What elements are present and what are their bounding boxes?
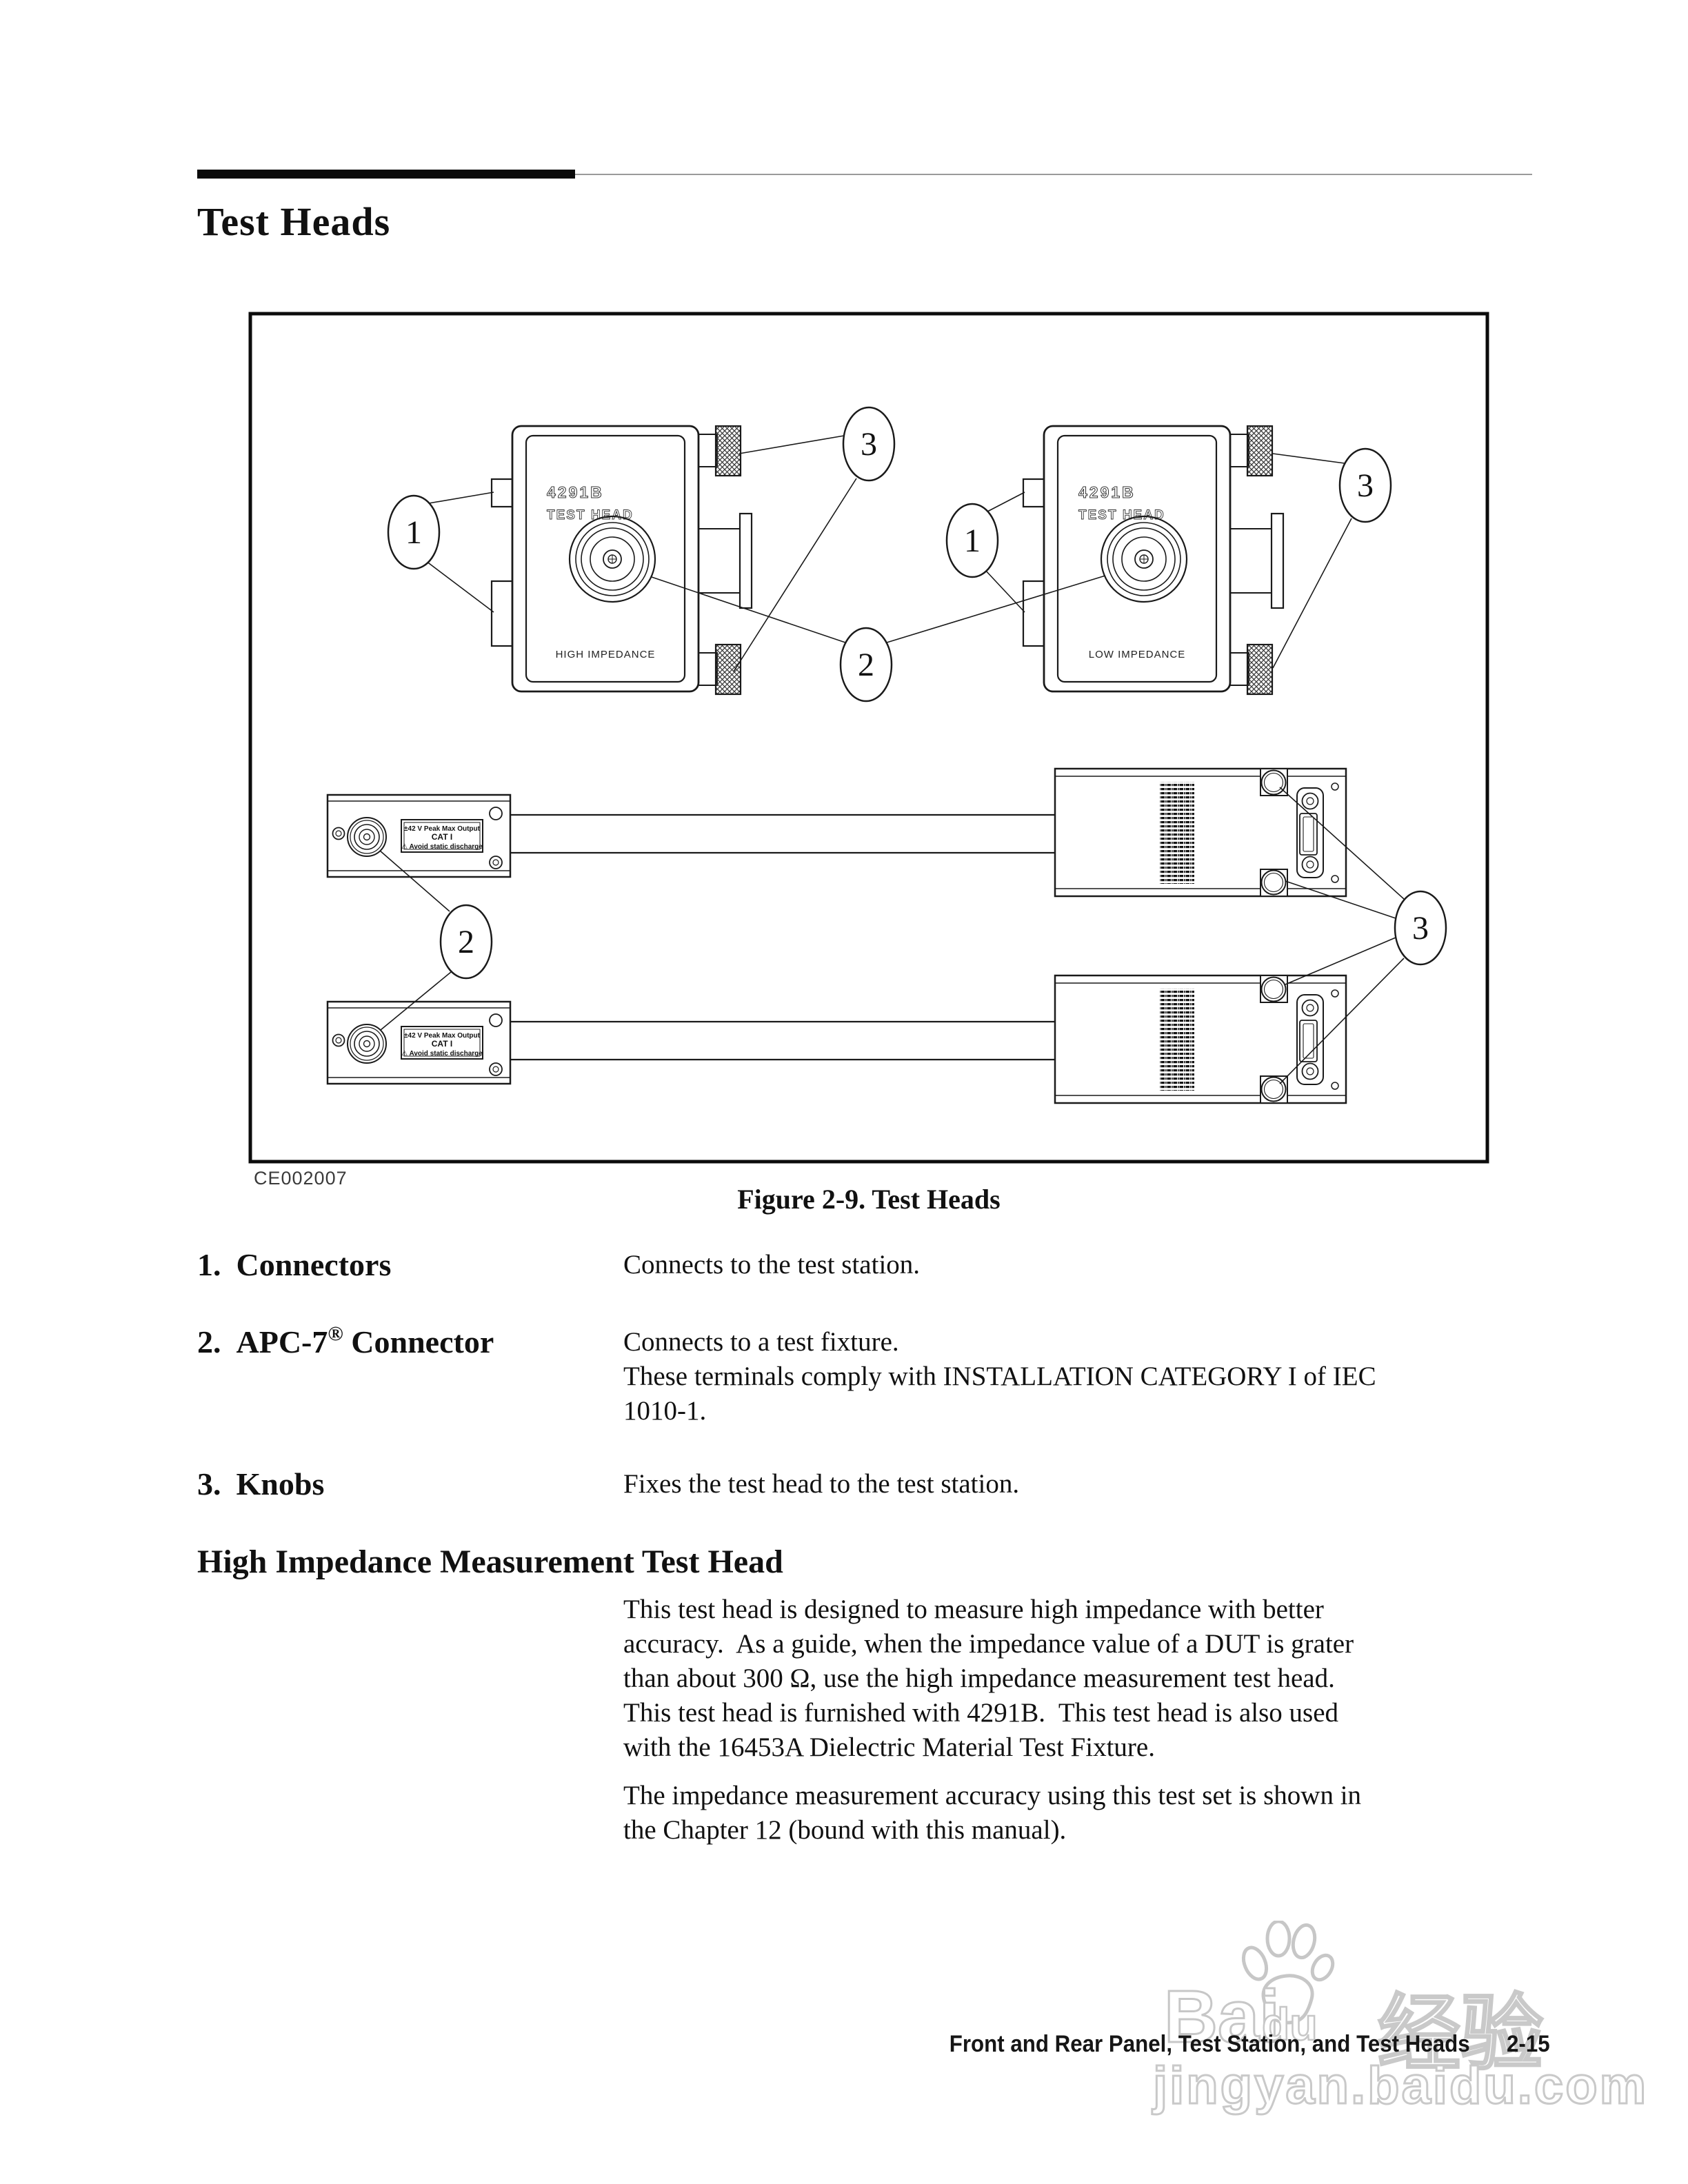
- type-label: TEST HEAD: [1078, 508, 1165, 523]
- item-name: APC-7: [237, 1324, 328, 1359]
- section-heading: High Impedance Measurement Test Head: [197, 1543, 783, 1581]
- section-paragraph-2: The impedance measurement accuracy using…: [623, 1779, 1547, 1848]
- item-name-cont: Connector: [343, 1324, 494, 1359]
- callout-1-left: 1: [388, 496, 439, 569]
- footer-page-number: 2-15: [1507, 2031, 1550, 2058]
- watermark-url: jingyan.baidu.com: [1153, 2056, 1648, 2116]
- description-line: 1010-1.: [623, 1394, 1376, 1428]
- paragraph-line: This test head is furnished with 4291B. …: [623, 1696, 1547, 1730]
- paragraph-line: with the 16453A Dielectric Material Test…: [623, 1730, 1547, 1765]
- figure-caption: Figure 2-9. Test Heads: [248, 1183, 1489, 1215]
- item-name: Knobs: [237, 1466, 325, 1502]
- model-label: 4291B: [1078, 483, 1136, 501]
- model-label: 4291B: [547, 483, 604, 501]
- manual-page: Test Heads 4291B TEST: [0, 0, 1688, 2184]
- svg-text:2: 2: [858, 647, 874, 683]
- callout-3-right: 3: [1395, 891, 1446, 964]
- description-line: Fixes the test head to the test station.: [623, 1467, 1019, 1502]
- warning-label-line2: CAT I: [432, 832, 452, 842]
- footer-chapter-title: Front and Rear Panel, Test Station, and …: [949, 2031, 1470, 2058]
- paragraph-line: This test head is designed to measure hi…: [623, 1593, 1547, 1627]
- svg-text:2: 2: [458, 924, 474, 960]
- page-footer: Front and Rear Panel, Test Station, and …: [949, 2031, 1550, 2058]
- paragraph-line: than about 300 Ω, use the high impedance…: [623, 1661, 1547, 1696]
- paragraph-line: The impedance measurement accuracy using…: [623, 1779, 1547, 1813]
- rotated-label-text: [1160, 989, 1194, 1091]
- test-heads-diagram: 4291B TEST HEAD HIGH IMPEDANCE 4291B TES…: [248, 312, 1489, 1164]
- svg-text:1: 1: [405, 514, 422, 551]
- svg-text:1: 1: [964, 523, 981, 559]
- callout-2-bottom: 2: [441, 905, 492, 978]
- callout-2-center: 2: [841, 628, 892, 701]
- item-number: 3.: [197, 1466, 221, 1502]
- type-label: TEST HEAD: [547, 508, 634, 523]
- item-label: 3.Knobs: [197, 1464, 324, 1502]
- item-number: 2.: [197, 1324, 221, 1359]
- item-description: Connects to a test fixture. These termin…: [623, 1325, 1376, 1428]
- connector-plate: [1297, 788, 1323, 878]
- description-line: Connects to a test fixture.: [623, 1325, 1376, 1359]
- callout-3-top-right: 3: [1340, 449, 1391, 522]
- item-name: Connectors: [237, 1247, 392, 1282]
- connector-plate: [1297, 995, 1323, 1084]
- header-rule-line: [575, 174, 1532, 175]
- svg-text:3: 3: [1357, 467, 1374, 504]
- svg-text:3: 3: [861, 426, 877, 463]
- knurled-knob: [1247, 645, 1272, 694]
- knurled-knob: [1247, 426, 1272, 476]
- header-rule-bar: [197, 170, 575, 179]
- description-line: Connects to the test station.: [623, 1248, 920, 1282]
- knurled-knob: [716, 645, 741, 694]
- warning-label-line3: ⚠ Avoid static discharge: [401, 843, 483, 851]
- page-title: Test Heads: [197, 199, 390, 245]
- svg-text:3: 3: [1412, 910, 1429, 947]
- callout-1-right: 1: [947, 504, 998, 577]
- item-label: 1.Connectors: [197, 1245, 391, 1283]
- warning-label-line2: CAT I: [432, 1039, 452, 1049]
- callout-3-top-left: 3: [843, 407, 894, 481]
- section-paragraph-1: This test head is designed to measure hi…: [623, 1593, 1547, 1765]
- impedance-label: HIGH IMPEDANCE: [556, 649, 656, 660]
- registered-mark: ®: [328, 1322, 343, 1345]
- impedance-label: LOW IMPEDANCE: [1089, 649, 1186, 660]
- item-number: 1.: [197, 1247, 221, 1282]
- rotated-label-text: [1160, 782, 1194, 884]
- description-line: These terminals comply with INSTALLATION…: [623, 1359, 1376, 1394]
- item-description: Connects to the test station.: [623, 1248, 920, 1282]
- item-label: 2.APC-7® Connector: [197, 1322, 494, 1360]
- paragraph-line: the Chapter 12 (bound with this manual).: [623, 1813, 1547, 1848]
- paragraph-line: accuracy. As a guide, when the impedance…: [623, 1627, 1547, 1661]
- warning-label-line3: ⚠ Avoid static discharge: [401, 1050, 483, 1058]
- figure-2-9: 4291B TEST HEAD HIGH IMPEDANCE 4291B TES…: [248, 312, 1489, 1164]
- knurled-knob: [716, 426, 741, 476]
- item-description: Fixes the test head to the test station.: [623, 1467, 1019, 1502]
